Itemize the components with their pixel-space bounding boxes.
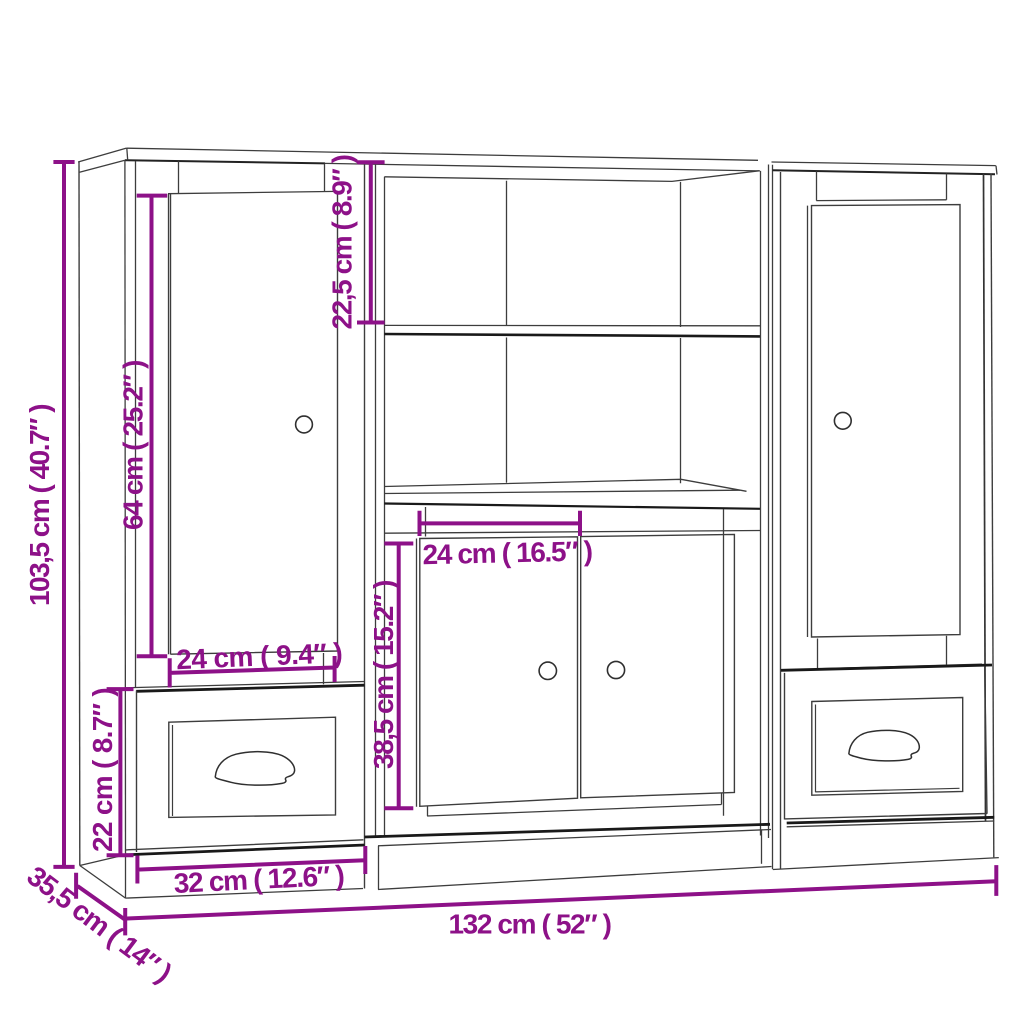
- svg-text:22 cm ( 8.7″ ): 22 cm ( 8.7″ ): [87, 688, 118, 852]
- svg-text:24 cm ( 16.5″ ): 24 cm ( 16.5″ ): [422, 535, 592, 570]
- svg-text:64 cm ( 25.2″ ): 64 cm ( 25.2″ ): [118, 361, 149, 530]
- svg-text:132 cm ( 52″ ): 132 cm ( 52″ ): [449, 909, 611, 940]
- svg-text:38,5 cm ( 15.2″ ): 38,5 cm ( 15.2″ ): [368, 581, 399, 769]
- svg-text:22,5 cm ( 8.9″ ): 22,5 cm ( 8.9″ ): [327, 155, 358, 329]
- svg-text:103,5 cm ( 40.7″ ): 103,5 cm ( 40.7″ ): [24, 405, 55, 606]
